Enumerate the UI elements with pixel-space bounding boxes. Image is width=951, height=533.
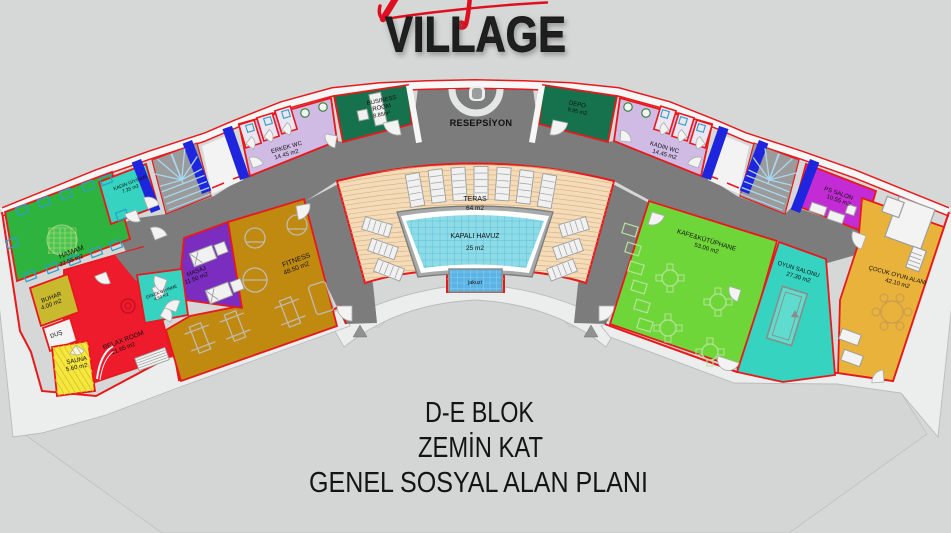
svg-text:KAPALI HAVUZ: KAPALI HAVUZ — [450, 233, 500, 240]
svg-text:ZEMİN KAT: ZEMİN KAT — [418, 431, 543, 464]
svg-text:D-E BLOK: D-E BLOK — [425, 397, 535, 429]
svg-text:jakuzi: jakuzi — [467, 280, 482, 286]
svg-text:GENEL SOSYAL ALAN PLANI: GENEL SOSYAL ALAN PLANI — [309, 467, 648, 499]
svg-text:64 m2: 64 m2 — [466, 205, 484, 212]
svg-text:TERAS: TERAS — [463, 196, 487, 203]
svg-text:RESEPSİYON: RESEPSİYON — [450, 118, 513, 128]
svg-text:25 m2: 25 m2 — [466, 245, 484, 252]
svg-text:VILLAGE: VILLAGE — [385, 7, 566, 63]
